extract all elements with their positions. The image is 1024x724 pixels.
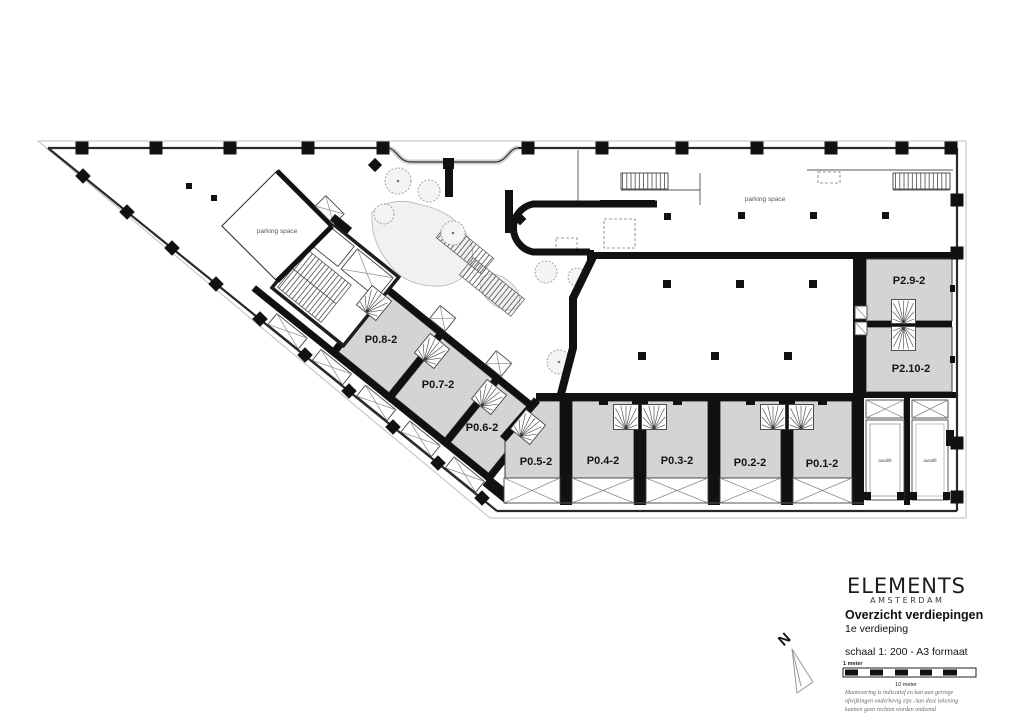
floor-plan-page: P0.8-2 P0.7-2 P0.6-2 P0.5-2 P0.4-2 P0.3-… [0, 0, 1024, 724]
spiral-stair-icon [614, 405, 639, 430]
column [664, 213, 671, 220]
spiral-stair-icon [789, 405, 814, 430]
column [663, 280, 671, 288]
column [186, 183, 192, 189]
room-label-p0-8: P0.8-2 [365, 334, 397, 346]
column [736, 280, 744, 288]
staircase [621, 173, 668, 189]
floor-plan-drawing: P0.8-2 P0.7-2 P0.6-2 P0.5-2 P0.4-2 P0.3-… [0, 0, 1024, 724]
north-label: N [775, 630, 794, 650]
disclaimer-line: afwijkingen onderhevig zijn. Aan deze te… [845, 698, 958, 705]
parking-space-label: parking space [745, 196, 786, 203]
drawing-title: Overzicht verdiepingen [845, 608, 983, 622]
room-label-p0-3: P0.3-2 [661, 455, 693, 467]
room-label-p0-2: P0.2-2 [734, 457, 766, 469]
scale-bar: 1 meter 10 meter [843, 661, 976, 688]
brand-subtitle: A M S T E R D A M [870, 596, 942, 605]
column [638, 352, 646, 360]
autolift-block [858, 398, 954, 505]
room-label-p2-10: P2.10-2 [892, 363, 931, 375]
spiral-stair-icon [761, 405, 786, 430]
parking-space-label: parking space [257, 228, 298, 235]
balcony-strip [504, 478, 852, 503]
room-label-p0-7: P0.7-2 [422, 379, 454, 391]
autolift-label: autolift [923, 458, 937, 463]
room-label-p2-9: P2.9-2 [893, 275, 925, 287]
column [882, 212, 889, 219]
north-arrow: N [775, 630, 813, 693]
column [809, 280, 817, 288]
disclaimer-line: kunnen geen rechten worden ontleend [845, 707, 937, 713]
room-label-p0-5: P0.5-2 [520, 456, 552, 468]
scale-note: schaal 1: 200 - A3 formaat [845, 646, 968, 658]
room-label-p0-1: P0.1-2 [806, 458, 838, 470]
brand-name: ELEMENTS [847, 574, 965, 598]
scale-bar-unit: 1 meter [843, 661, 863, 667]
tree-icon [374, 204, 394, 224]
tree-icon [535, 261, 557, 283]
column [810, 212, 817, 219]
tree-icon [418, 180, 440, 202]
drawing-subtitle: 1e verdieping [845, 623, 908, 635]
spiral-stair-icon [642, 405, 667, 430]
scale-bar-total: 10 meter [895, 682, 917, 688]
room-label-p0-6: P0.6-2 [466, 422, 498, 434]
autolift-label: autolift [878, 458, 892, 463]
disclaimer: Maatvoering is indicatief en kan aan ger… [844, 689, 958, 713]
drive-court-wall [513, 204, 657, 252]
disclaimer-line: Maatvoering is indicatief en kan aan ger… [844, 689, 954, 696]
column [784, 352, 792, 360]
column [711, 352, 719, 360]
spiral-stair-icon [892, 327, 916, 351]
title-block: ELEMENTS A M S T E R D A M Overzicht ver… [843, 574, 983, 713]
column [738, 212, 745, 219]
staircase [893, 173, 950, 189]
spiral-stair-icon [892, 300, 916, 324]
room-label-p0-4: P0.4-2 [587, 455, 619, 467]
north-arrow-icon [792, 649, 813, 693]
column [211, 195, 217, 201]
